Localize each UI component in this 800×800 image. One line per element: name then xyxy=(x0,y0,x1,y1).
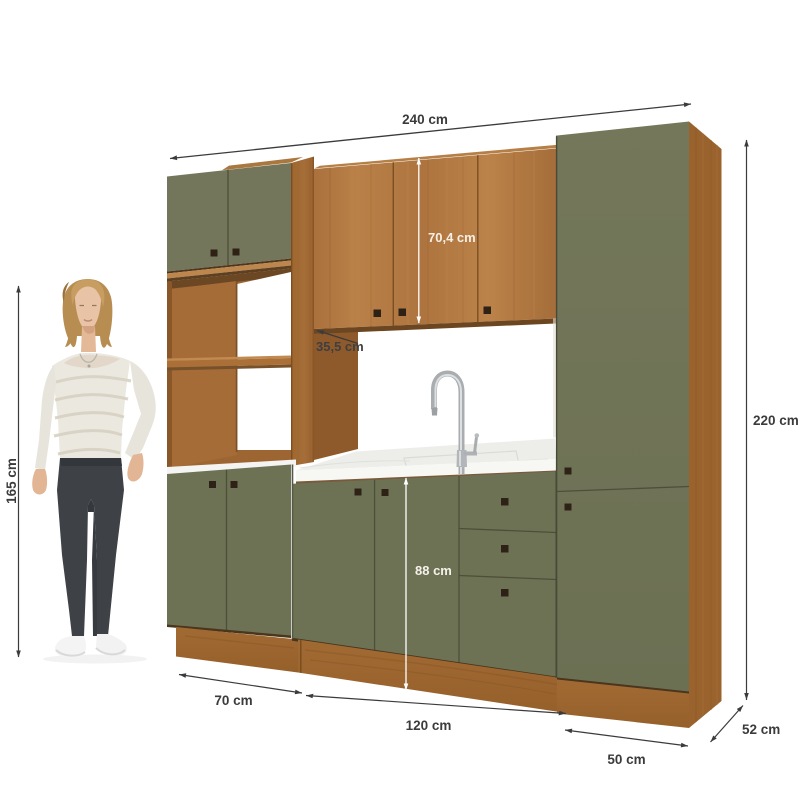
svg-text:50 cm: 50 cm xyxy=(607,752,645,767)
svg-text:52 cm: 52 cm xyxy=(742,722,780,737)
svg-text:88 cm: 88 cm xyxy=(415,563,452,578)
svg-text:70 cm: 70 cm xyxy=(214,693,252,708)
svg-text:165 cm: 165 cm xyxy=(4,458,19,504)
svg-text:120 cm: 120 cm xyxy=(406,718,452,733)
svg-text:220 cm: 220 cm xyxy=(753,413,799,428)
svg-text:70,4 cm: 70,4 cm xyxy=(428,230,476,245)
svg-text:240 cm: 240 cm xyxy=(402,112,448,127)
svg-text:35,5 cm: 35,5 cm xyxy=(316,339,364,354)
